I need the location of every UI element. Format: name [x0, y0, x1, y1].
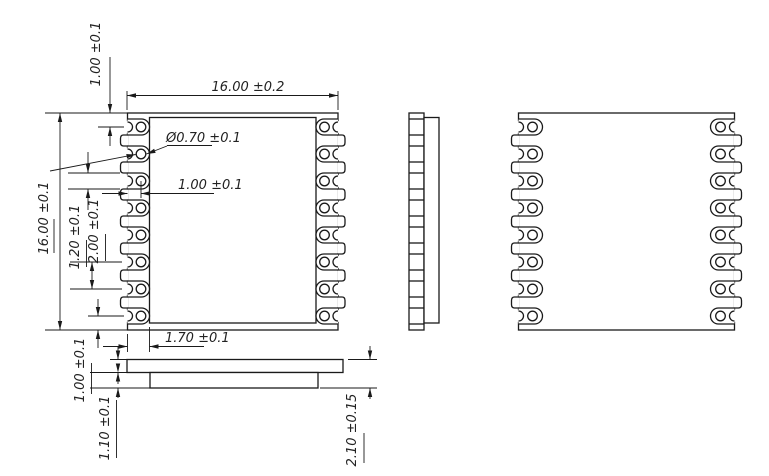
- dim-arrowhead: [96, 330, 100, 339]
- notch-mask: [332, 229, 344, 241]
- notch-mask: [513, 256, 525, 268]
- pin-hole: [320, 203, 330, 213]
- notch-mask: [513, 175, 525, 187]
- edge-bump: [512, 297, 520, 308]
- drawing-canvas: 16.00 ±0.2 16.00 ±0.1 1.00 ±0.1 Ø0.70 ±0…: [0, 0, 769, 476]
- notch-mask: [122, 283, 134, 295]
- notch-mask: [513, 202, 525, 214]
- edge-bump: [121, 270, 129, 281]
- dim-arrowhead: [127, 93, 136, 97]
- pin-hole: [528, 203, 538, 213]
- edge-bump: [121, 297, 129, 308]
- dim-arrowhead: [368, 388, 372, 397]
- pin-hole: [716, 176, 726, 186]
- notch-mask: [729, 175, 741, 187]
- notch-mask: [513, 148, 525, 160]
- dim-arrowhead: [108, 127, 112, 136]
- notch-mask: [729, 310, 741, 322]
- label-shield-height: 1.10 ±0.1: [98, 396, 113, 461]
- notch-mask: [332, 256, 344, 268]
- pin-hole: [320, 311, 330, 321]
- dim-arrowhead: [116, 388, 120, 397]
- label-total-thickness: 2.10 ±0.15: [345, 394, 360, 467]
- edge-bump: [337, 243, 345, 254]
- pin-hole: [528, 149, 538, 159]
- edge-bump: [734, 216, 742, 227]
- label-hole-diameter: Ø0.70 ±0.1: [165, 131, 241, 146]
- pin-hole: [528, 311, 538, 321]
- dim-arrowhead: [86, 164, 90, 173]
- edge-bump: [121, 243, 129, 254]
- dim-arrowhead: [119, 344, 128, 348]
- notch-mask: [332, 175, 344, 187]
- pin-hole: [716, 122, 726, 132]
- back-view: [512, 113, 742, 330]
- notch-mask: [513, 310, 525, 322]
- edge-bump: [337, 270, 345, 281]
- notch-mask: [513, 283, 525, 295]
- shield-profile: [424, 118, 439, 324]
- pin-hole: [136, 284, 146, 294]
- dim-arrowhead: [150, 344, 159, 348]
- pin-hole: [136, 257, 146, 267]
- label-hole-edge-offset: 1.00 ±0.1: [178, 178, 243, 193]
- edge-bump: [734, 243, 742, 254]
- edge-bump: [337, 135, 345, 146]
- label-pcb-thickness: 1.00 ±0.1: [73, 338, 88, 403]
- edge-bump: [337, 297, 345, 308]
- edge-bump: [121, 216, 129, 227]
- dim-arrowhead: [329, 93, 338, 97]
- edge-bump: [734, 297, 742, 308]
- pin-hole: [320, 149, 330, 159]
- pin-hole: [528, 176, 538, 186]
- edge-bump: [337, 216, 345, 227]
- notch-mask: [513, 121, 525, 133]
- pin-hole: [136, 203, 146, 213]
- notch-mask: [729, 121, 741, 133]
- dim-arrowhead: [116, 364, 120, 373]
- edge-bump: [512, 216, 520, 227]
- edge-bump: [734, 189, 742, 200]
- notch-mask: [729, 256, 741, 268]
- pin-hole: [320, 122, 330, 132]
- dim-arrowhead: [58, 113, 62, 122]
- dim-arrowhead: [58, 321, 62, 330]
- dim-arrowhead: [116, 351, 120, 360]
- notch-mask: [729, 229, 741, 241]
- edge-bump: [512, 189, 520, 200]
- edge-bump: [734, 162, 742, 173]
- notch-mask: [513, 229, 525, 241]
- notch-mask: [122, 256, 134, 268]
- notch-mask: [332, 202, 344, 214]
- pin-hole: [320, 284, 330, 294]
- label-shield-edge-inset: 1.70 ±0.1: [165, 331, 230, 346]
- pin-hole: [528, 122, 538, 132]
- pin-hole: [136, 149, 146, 159]
- label-body-width: 16.00 ±0.2: [212, 80, 285, 95]
- dim-arrowhead: [116, 373, 120, 382]
- edge-bump: [512, 243, 520, 254]
- mechanical-drawing: 16.00 ±0.2 16.00 ±0.1 1.00 ±0.1 Ø0.70 ±0…: [0, 0, 769, 476]
- edge-bump: [337, 162, 345, 173]
- notch-mask: [332, 283, 344, 295]
- edge-bump: [512, 135, 520, 146]
- edge-bump: [512, 270, 520, 281]
- notch-mask: [122, 175, 134, 187]
- notch-mask: [332, 121, 344, 133]
- edge-bump: [121, 135, 129, 146]
- label-pin1-edge-offset: 1.00 ±0.1: [89, 22, 104, 87]
- pin-hole: [320, 257, 330, 267]
- edge-bump: [337, 189, 345, 200]
- pin-hole: [716, 149, 726, 159]
- notch-mask: [729, 202, 741, 214]
- dim-arrowhead: [368, 351, 372, 360]
- edge-bump: [121, 162, 129, 173]
- edge-bump: [512, 162, 520, 173]
- notch-mask: [729, 148, 741, 160]
- notch-mask: [332, 310, 344, 322]
- pin-hole: [528, 230, 538, 240]
- pin-hole: [528, 257, 538, 267]
- pin-hole: [136, 122, 146, 132]
- dim-arrowhead: [90, 280, 94, 289]
- bottom-profile-view: [127, 360, 343, 389]
- pin-hole: [136, 230, 146, 240]
- dim-arrowhead: [86, 189, 90, 198]
- pin-hole: [716, 257, 726, 267]
- shield-slab: [150, 373, 318, 389]
- pin-hole: [716, 203, 726, 213]
- notch-mask: [122, 202, 134, 214]
- edge-bump: [734, 270, 742, 281]
- module-body: [519, 113, 735, 330]
- notch-mask: [332, 148, 344, 160]
- pin-hole: [716, 311, 726, 321]
- pin-hole: [320, 230, 330, 240]
- pin-hole: [136, 311, 146, 321]
- pin-hole: [528, 284, 538, 294]
- notch-mask: [729, 283, 741, 295]
- pin-hole: [716, 284, 726, 294]
- dim-arrowhead: [96, 307, 100, 316]
- pin-hole: [320, 176, 330, 186]
- dim-arrowhead: [108, 104, 112, 113]
- notch-mask: [122, 229, 134, 241]
- side-view: [409, 113, 439, 330]
- edge-bump: [734, 135, 742, 146]
- label-body-height: 16.00 ±0.1: [37, 182, 52, 255]
- pin-hole: [716, 230, 726, 240]
- pcb-slab: [127, 360, 343, 373]
- label-pin-pitch: 2.00 ±0.1: [87, 199, 102, 264]
- label-pad-width: 1.20 ±0.1: [68, 205, 83, 270]
